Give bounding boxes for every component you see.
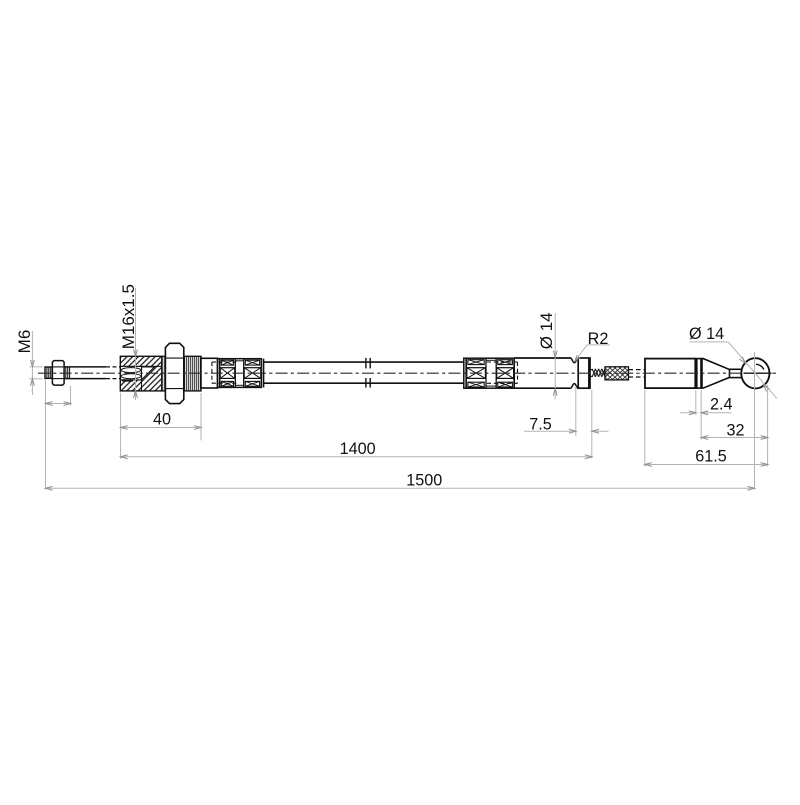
- svg-text:M6: M6: [15, 330, 34, 354]
- svg-text:40: 40: [153, 411, 171, 429]
- svg-text:Ø 14: Ø 14: [537, 312, 556, 349]
- svg-text:M16x1.5: M16x1.5: [119, 284, 138, 349]
- svg-text:1400: 1400: [340, 440, 376, 458]
- svg-text:1500: 1500: [406, 471, 442, 489]
- svg-text:2.4: 2.4: [710, 395, 733, 413]
- svg-text:61.5: 61.5: [695, 447, 727, 465]
- svg-text:32: 32: [726, 421, 744, 439]
- svg-text:Ø 14: Ø 14: [689, 325, 724, 343]
